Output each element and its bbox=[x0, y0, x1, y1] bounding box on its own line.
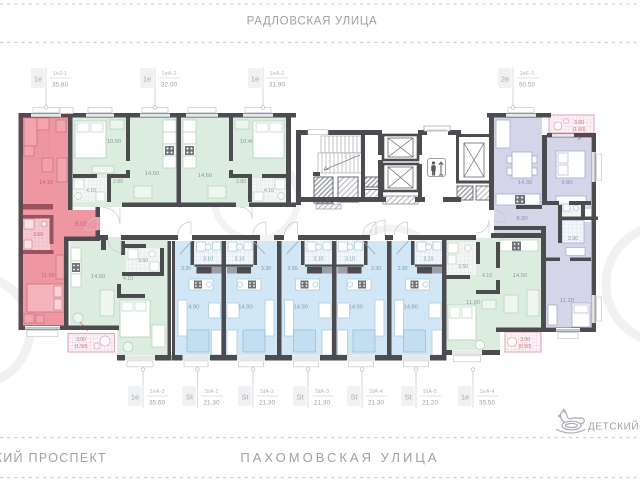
svg-text:4.10: 4.10 bbox=[86, 188, 96, 194]
svg-text:StА-3: StА-3 bbox=[315, 389, 329, 395]
svg-text:10.40: 10.40 bbox=[240, 139, 255, 145]
svg-text:St: St bbox=[186, 393, 194, 402]
svg-text:21.30: 21.30 bbox=[204, 400, 220, 407]
svg-text:ДЕТСКИЙ: ДЕТСКИЙ bbox=[588, 420, 639, 433]
svg-text:14.90: 14.90 bbox=[348, 305, 363, 311]
svg-text:4.10: 4.10 bbox=[264, 188, 274, 194]
svg-text:3.30: 3.30 bbox=[287, 266, 297, 272]
svg-text:3.00: 3.00 bbox=[574, 120, 584, 126]
svg-text:(1.50): (1.50) bbox=[74, 344, 87, 350]
svg-text:1еА-2: 1еА-2 bbox=[162, 71, 177, 77]
svg-text:3.30: 3.30 bbox=[371, 266, 381, 272]
svg-text:StА-1: StА-1 bbox=[205, 389, 219, 395]
svg-text:3.10: 3.10 bbox=[313, 257, 323, 263]
svg-text:3.10: 3.10 bbox=[203, 257, 213, 263]
svg-text:1е: 1е bbox=[143, 75, 151, 84]
svg-text:ПАХОМОВСКАЯ УЛИЦА: ПАХОМОВСКАЯ УЛИЦА bbox=[240, 450, 439, 465]
svg-text:1е2-1: 1е2-1 bbox=[53, 71, 67, 77]
svg-text:10.50: 10.50 bbox=[107, 139, 122, 145]
svg-text:3.30: 3.30 bbox=[181, 266, 191, 272]
svg-text:1е: 1е bbox=[461, 393, 469, 402]
svg-text:1е: 1е bbox=[251, 75, 259, 84]
svg-text:3.30: 3.30 bbox=[261, 266, 271, 272]
svg-text:2.80: 2.80 bbox=[113, 179, 123, 185]
svg-text:21.30: 21.30 bbox=[259, 400, 275, 407]
svg-text:14.50: 14.50 bbox=[513, 273, 528, 279]
svg-text:St: St bbox=[296, 393, 304, 402]
svg-text:21.30: 21.30 bbox=[314, 400, 330, 407]
svg-text:21.20: 21.20 bbox=[422, 400, 438, 407]
svg-text:3.30: 3.30 bbox=[397, 266, 407, 272]
svg-text:St: St bbox=[404, 393, 412, 402]
svg-text:14.80: 14.80 bbox=[403, 305, 418, 311]
svg-text:StА-5: StА-5 bbox=[423, 389, 437, 395]
svg-text:1е: 1е bbox=[131, 393, 139, 402]
svg-text:2еF-1: 2еF-1 bbox=[520, 71, 535, 77]
svg-text:21.30: 21.30 bbox=[368, 400, 384, 407]
svg-text:50.50: 50.50 bbox=[519, 82, 535, 89]
svg-text:3.90: 3.90 bbox=[568, 236, 578, 242]
svg-text:14.30: 14.30 bbox=[518, 180, 533, 186]
svg-text:3.10: 3.10 bbox=[234, 257, 244, 263]
svg-text:1е: 1е bbox=[34, 75, 42, 84]
svg-text:(1.50): (1.50) bbox=[572, 127, 585, 133]
svg-text:11.60: 11.60 bbox=[41, 273, 55, 279]
svg-text:14.60: 14.60 bbox=[198, 173, 213, 179]
svg-text:3.50: 3.50 bbox=[138, 258, 148, 264]
svg-text:35.50: 35.50 bbox=[479, 400, 495, 407]
svg-text:St: St bbox=[241, 393, 249, 402]
svg-text:4.10: 4.10 bbox=[123, 276, 133, 282]
svg-text:2е: 2е bbox=[501, 75, 509, 84]
svg-text:31.90: 31.90 bbox=[269, 82, 285, 89]
svg-text:StА-4: StА-4 bbox=[369, 389, 383, 395]
svg-text:St: St bbox=[350, 393, 358, 402]
svg-text:1еА-3: 1еА-3 bbox=[150, 389, 165, 395]
svg-text:РАДЛОВСКАЯ УЛИЦА: РАДЛОВСКАЯ УЛИЦА bbox=[247, 16, 378, 28]
svg-text:3.50: 3.50 bbox=[33, 232, 43, 238]
svg-text:(0.50): (0.50) bbox=[518, 344, 531, 350]
svg-text:14.90: 14.90 bbox=[293, 305, 308, 311]
svg-text:3.10: 3.10 bbox=[423, 257, 433, 263]
svg-text:StА-2: StА-2 bbox=[260, 389, 274, 395]
svg-text:14.60: 14.60 bbox=[145, 171, 160, 177]
svg-text:8.30: 8.30 bbox=[516, 216, 527, 222]
svg-text:1еА-4: 1еА-4 bbox=[480, 389, 495, 395]
svg-text:4.10: 4.10 bbox=[482, 273, 492, 279]
svg-text:14.50: 14.50 bbox=[91, 274, 106, 280]
svg-text:14.90: 14.90 bbox=[238, 305, 253, 311]
svg-text:3.50: 3.50 bbox=[458, 264, 468, 270]
svg-text:14.10: 14.10 bbox=[39, 180, 53, 186]
svg-text:9.80: 9.80 bbox=[561, 180, 572, 186]
svg-text:32.00: 32.00 bbox=[161, 82, 177, 89]
svg-text:ВСКИЙ ПРОСПЕКТ: ВСКИЙ ПРОСПЕКТ bbox=[0, 450, 107, 465]
svg-text:3.00: 3.00 bbox=[520, 337, 530, 343]
svg-text:3.10: 3.10 bbox=[345, 257, 355, 263]
svg-text:35.60: 35.60 bbox=[149, 400, 165, 407]
svg-text:1еА-1: 1еА-1 bbox=[270, 71, 285, 77]
svg-text:35.80: 35.80 bbox=[52, 82, 68, 89]
svg-text:3.00: 3.00 bbox=[76, 337, 86, 343]
svg-text:2.80: 2.80 bbox=[236, 179, 246, 185]
